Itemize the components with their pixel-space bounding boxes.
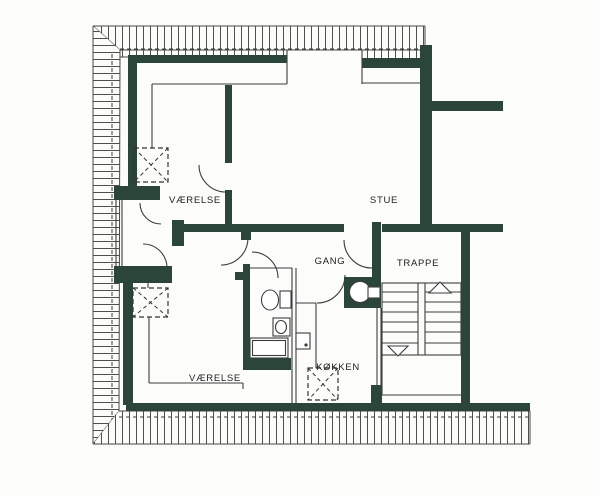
wall-bath-south	[243, 358, 291, 370]
door-living-room	[344, 240, 372, 268]
door-bedroom-top-partition	[199, 165, 226, 192]
room-label-hallway: GANG	[315, 256, 346, 267]
roof-hatch-top	[93, 26, 425, 60]
wc-niche	[344, 277, 381, 308]
wall-jamb-a	[241, 232, 251, 240]
wall-top-left	[128, 55, 287, 63]
toilet-icon	[262, 290, 279, 310]
room-label-living-room: STUE	[370, 195, 398, 206]
wall-stair-east	[461, 232, 470, 403]
wall-understair	[371, 385, 382, 403]
wall-right	[420, 45, 432, 232]
room-label-bedroom-top: VÆRELSE	[169, 195, 221, 206]
floor-plan-page: VÆRELSE STUE GANG TRAPPE KØKKEN VÆRELSE	[0, 0, 600, 495]
wall-party-stub	[432, 101, 503, 111]
wall-bottom	[126, 403, 530, 411]
walls	[114, 45, 530, 411]
wall-partition-upper-b	[225, 190, 232, 228]
water-closet-icon	[350, 282, 371, 303]
wall-left-lower	[123, 283, 133, 405]
skylight-x-icon	[133, 288, 168, 317]
stove-icon	[296, 333, 310, 349]
wall-hall-north	[184, 224, 344, 232]
staircase-symbol	[382, 282, 461, 395]
bathroom-fixtures	[250, 290, 291, 358]
wall-stub-west-upper	[114, 186, 160, 200]
wall-partition-upper-a	[225, 85, 232, 163]
stairs-up-arrow-icon	[429, 282, 451, 293]
stove-knob	[304, 343, 307, 346]
wall-hall-pillar	[172, 220, 184, 246]
kitchen-fixtures	[296, 333, 310, 349]
shower-tray-icon	[253, 341, 286, 356]
wall-bath-west	[243, 264, 250, 358]
wall-stair-north	[382, 224, 503, 232]
room-label-staircase: TRAPPE	[397, 258, 439, 269]
washbasin-icon	[276, 321, 287, 334]
door-bathroom	[252, 252, 278, 278]
door-hall-inner	[221, 238, 248, 265]
room-label-bedroom-bottom: VÆRELSE	[189, 373, 241, 384]
door-bedroom-top-west	[140, 203, 161, 224]
wall-left-upper	[128, 55, 137, 186]
wall-top-right	[362, 58, 420, 68]
toilet-icon	[280, 291, 291, 308]
skylight-x-icon	[134, 148, 168, 182]
door-bedroom-bottom	[143, 244, 167, 268]
door-kitchen	[317, 275, 345, 303]
floor-plan-drawing: VÆRELSE STUE GANG TRAPPE KØKKEN VÆRELSE	[0, 0, 600, 495]
water-closet-icon	[368, 287, 380, 298]
room-label-kitchen: KØKKEN	[316, 362, 360, 373]
wall-stub-west-lower	[114, 266, 172, 283]
roof-hatch-bottom	[93, 411, 530, 444]
wall-stair-west	[372, 222, 381, 280]
